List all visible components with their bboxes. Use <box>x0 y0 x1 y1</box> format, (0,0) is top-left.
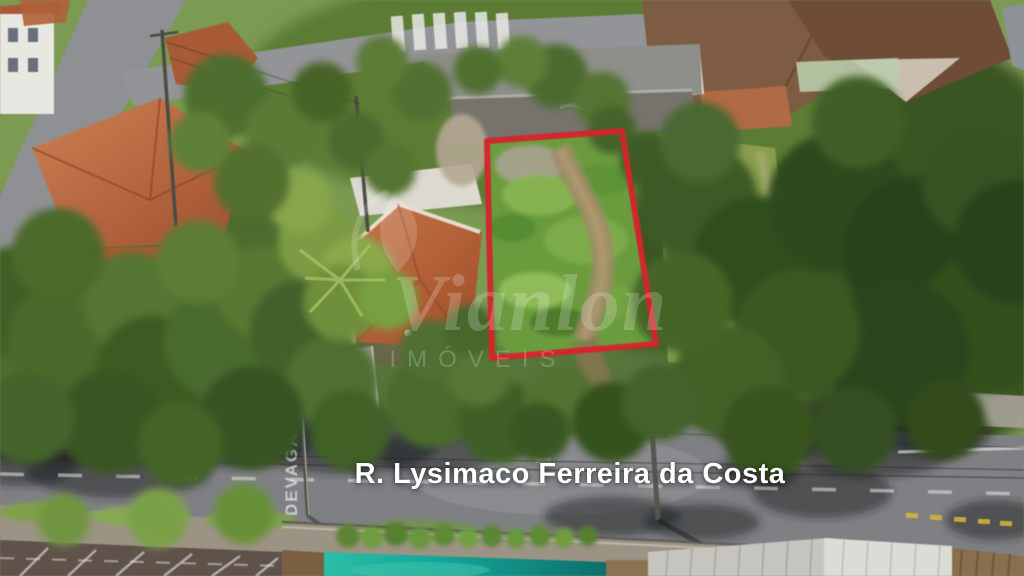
aerial-photo: DEVAGAR <box>0 0 1024 576</box>
wood-deck-left <box>282 550 330 576</box>
street-name-label: R. Lysimaco Ferreira da Costa <box>355 458 786 491</box>
